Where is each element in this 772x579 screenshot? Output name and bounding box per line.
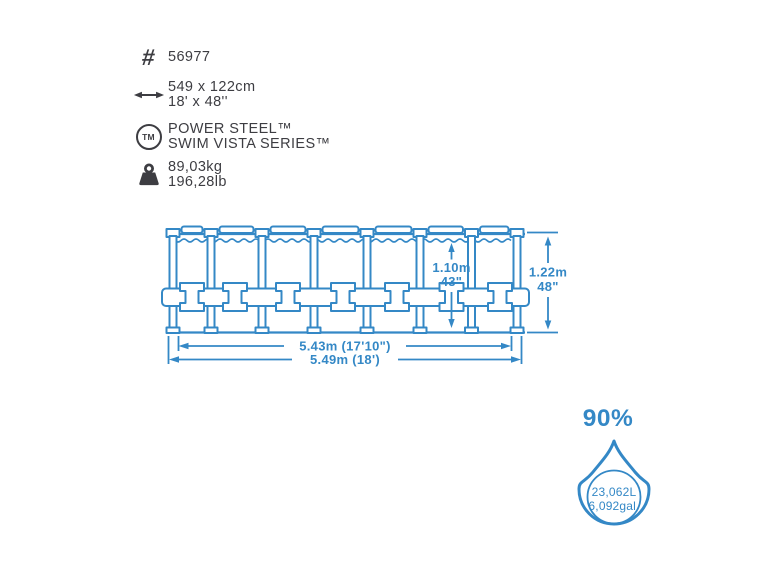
pool-leg [308,229,321,333]
water-height-imperial: 43" [441,274,463,289]
pool-leg [414,229,427,333]
dimension-total-height: 1.22m 48" [527,233,567,333]
double-arrow-glyph [133,88,165,102]
pool-leg [361,229,374,333]
product-spec-sheet: # 56977 549 x 122cm 18' x 48'' TM POWER … [0,0,772,579]
dimension-water-height: 1.10m 43" [432,243,470,328]
total-height-imperial: 48" [537,279,559,294]
pool-leg [167,229,180,333]
fill-percent: 90% [583,405,634,432]
series-line1: POWER STEEL™ [168,122,330,137]
pool-frame [162,227,529,334]
hash-glyph: # [141,44,157,71]
volume-gallons: 6,092gal. [588,499,639,513]
spec-weight: 89,03kg 196,28lb [132,160,227,190]
water-height-metric: 1.10m [432,260,470,275]
total-height-metric: 1.22m [529,265,567,280]
top-rail [182,227,509,234]
weight-metric: 89,03kg [168,160,227,175]
weight-icon [132,162,165,188]
hash-icon: # [132,44,165,71]
capacity-figure: 90% 23,062L 6,092gal. [560,395,670,540]
dimension-inner-width: 5.43m (17'10") [179,336,512,354]
pool-leg [465,229,478,333]
spec-series: TM POWER STEEL™ SWIM VISTA SERIES™ [132,122,330,152]
spec-size: 549 x 122cm 18' x 48'' [132,80,255,110]
water-line [169,239,511,242]
size-metric: 549 x 122cm [168,80,255,95]
pool-diagram: 1.10m 43" 1.22m 48" 5.43m (17'10") [158,220,572,380]
series-line2: SWIM VISTA SERIES™ [168,137,330,152]
item-number-value: 56977 [168,50,210,65]
outer-width-label: 5.49m (18') [310,352,380,367]
pool-leg [511,229,524,333]
pool-leg [256,229,269,333]
trademark-glyph: TM [136,124,162,150]
size-imperial: 18' x 48'' [168,95,255,110]
double-arrow-icon [132,88,165,102]
volume-liters: 23,062L [592,485,637,499]
pool-leg [205,229,218,333]
weight-imperial: 196,28lb [168,175,227,190]
spec-item-number: # 56977 [132,44,210,71]
trademark-icon: TM [132,124,165,150]
weight-glyph [136,162,162,188]
